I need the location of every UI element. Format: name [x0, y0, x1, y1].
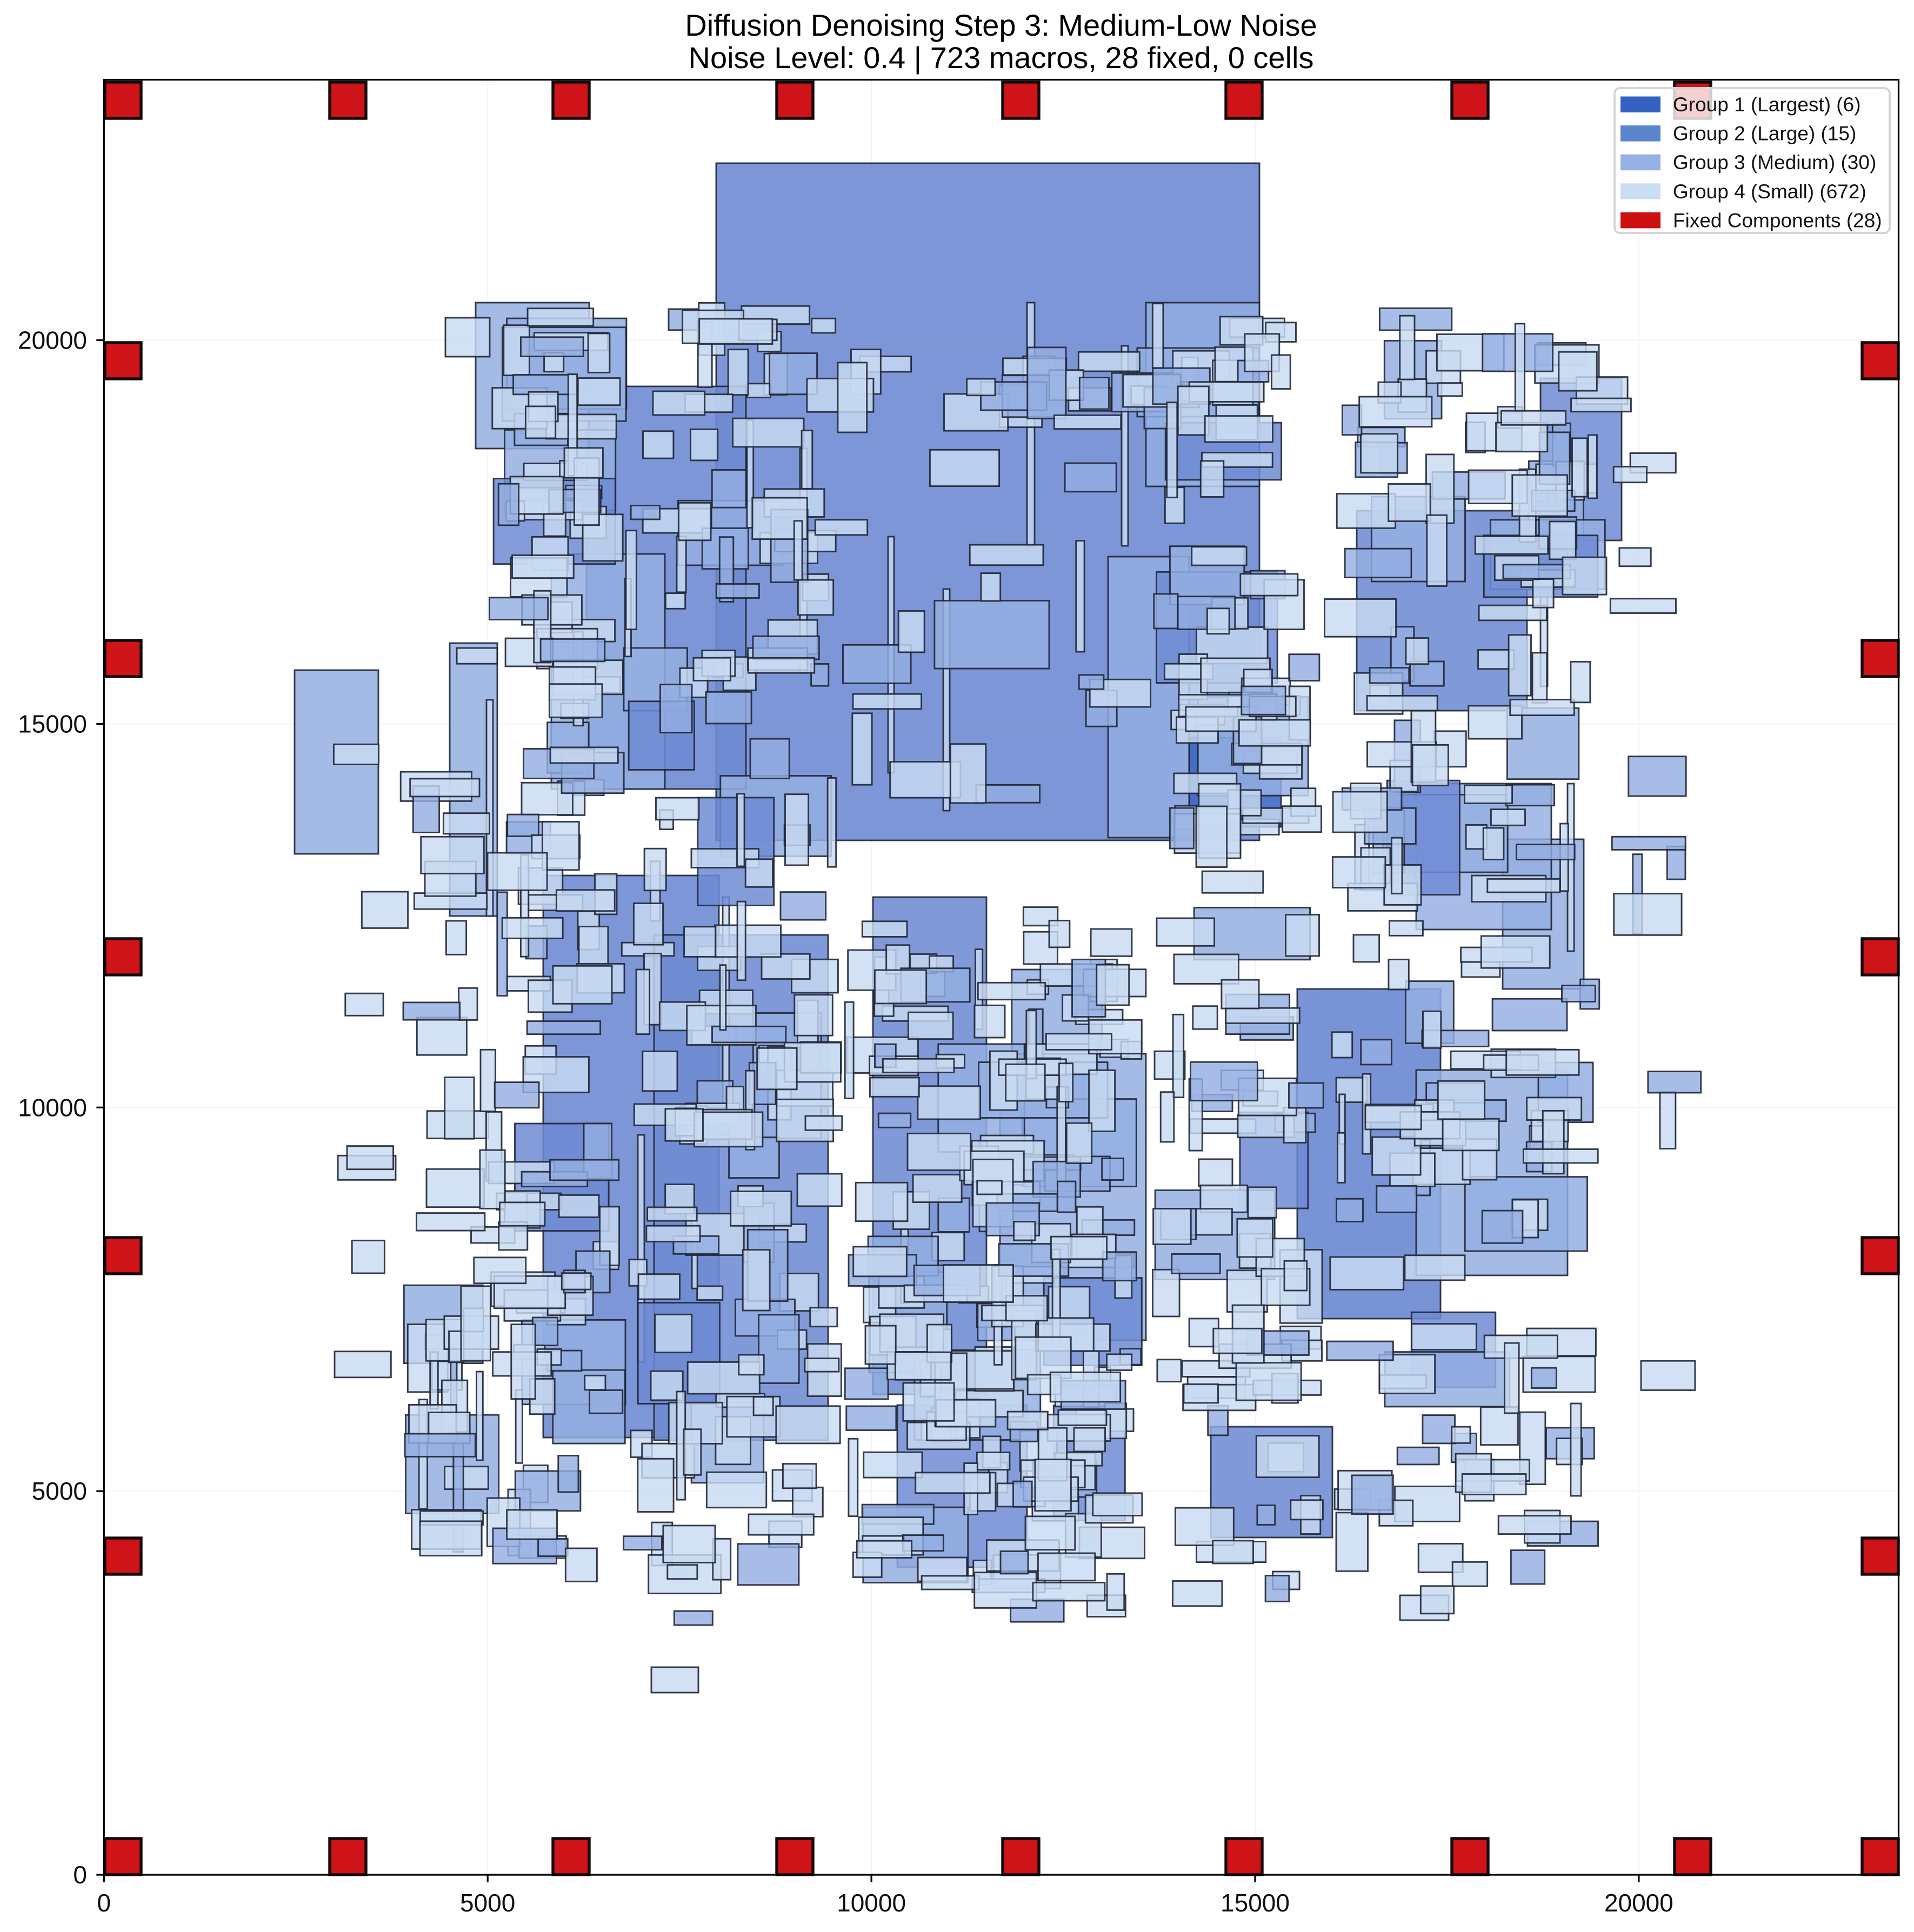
- svg-text:5000: 5000: [460, 1889, 515, 1917]
- svg-text:10000: 10000: [18, 1093, 87, 1121]
- svg-text:10000: 10000: [837, 1889, 906, 1917]
- svg-text:Group 4 (Small) (672): Group 4 (Small) (672): [1673, 181, 1866, 203]
- svg-text:Group 2 (Large) (15): Group 2 (Large) (15): [1673, 123, 1856, 145]
- svg-text:15000: 15000: [1221, 1889, 1290, 1917]
- svg-text:0: 0: [97, 1889, 111, 1917]
- svg-text:0: 0: [73, 1861, 87, 1889]
- svg-text:5000: 5000: [32, 1477, 87, 1505]
- svg-text:Fixed Components (28): Fixed Components (28): [1673, 209, 1882, 231]
- svg-text:20000: 20000: [18, 326, 87, 355]
- svg-text:Diffusion Denoising Step 3: Me: Diffusion Denoising Step 3: Medium-Low N…: [685, 8, 1317, 42]
- svg-text:Group 3 (Medium) (30): Group 3 (Medium) (30): [1673, 151, 1876, 173]
- svg-text:Group 1 (Largest) (6): Group 1 (Largest) (6): [1673, 93, 1861, 116]
- svg-text:15000: 15000: [18, 710, 87, 738]
- svg-text:Noise Level: 0.4 | 723 macros,: Noise Level: 0.4 | 723 macros, 28 fixed,…: [689, 41, 1314, 75]
- svg-text:20000: 20000: [1604, 1889, 1673, 1917]
